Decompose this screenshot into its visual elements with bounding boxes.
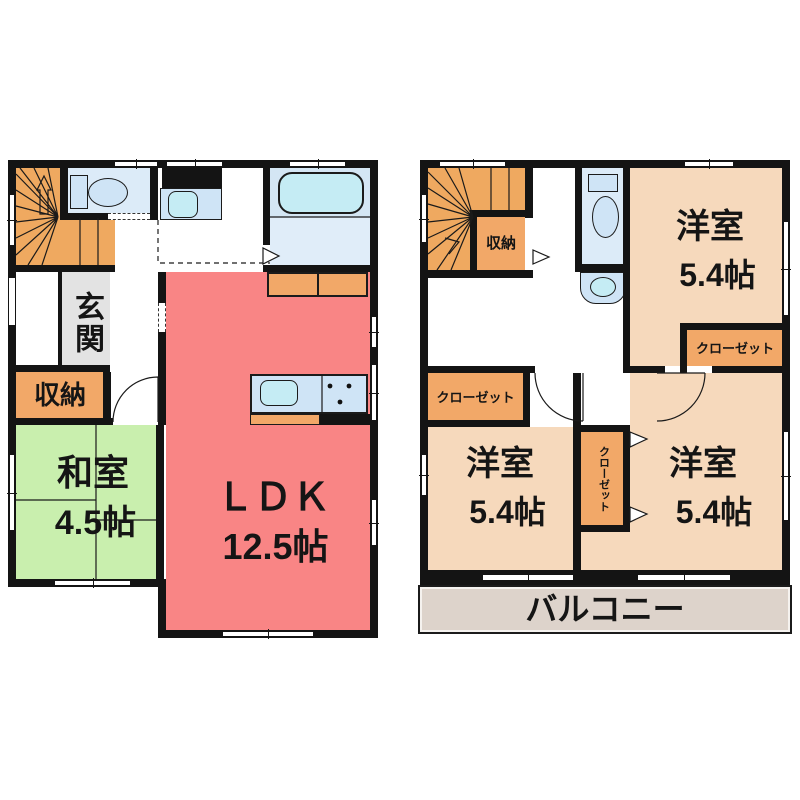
stairs-area [428,210,470,270]
window [223,630,313,638]
wall [573,373,581,570]
wall [523,373,530,427]
wall [420,420,530,427]
window [483,573,573,582]
room-sw-size: 5.4帖 [435,492,580,532]
toilet-door [108,213,150,220]
toilet-tank-icon [588,174,618,192]
wall [150,168,158,220]
window [290,160,345,168]
window [8,455,16,530]
laundry-counter [162,168,222,188]
ldk-sliding-door [158,303,166,332]
door-swing-arrow [533,250,549,264]
wall [623,366,665,373]
wall [263,265,378,272]
window [685,160,733,168]
window [370,365,378,420]
stairs-area [16,168,60,218]
wall [470,210,477,270]
ldk-floor [166,272,370,630]
wall [420,366,535,373]
wall [158,272,166,425]
window [55,579,130,587]
window [420,195,428,242]
wall [60,168,68,218]
wall [575,168,582,272]
room-ne-name: 洋室 [640,205,780,249]
floor1-plan: 玄関 収納 和室 4.5帖 ＬＤＫ 12.5帖 [8,160,378,638]
closet-w-label: クローゼット [428,378,523,416]
wall [680,323,783,330]
floorplan-canvas: 玄関 収納 和室 4.5帖 ＬＤＫ 12.5帖 [0,0,800,800]
closet-mid-label: クローゼット [583,435,623,523]
closet-ne-label: クローゼット [687,332,783,364]
balcony-label: バルコニー [418,588,792,630]
window [638,573,730,582]
window [370,317,378,347]
bathroom-floor [270,217,370,265]
ldk-size: 12.5帖 [193,525,358,569]
genkan-label: 玄関 [62,275,110,370]
toilet-bowl-icon [592,196,619,238]
wall [263,168,270,248]
bathtub-icon [278,172,364,214]
kitchen-cabinet-dark [320,414,370,425]
washbasin-bowl-icon [590,277,616,297]
wall [420,270,533,278]
room-se-size: 5.4帖 [640,492,788,532]
storage-door [525,218,533,270]
window [8,195,16,245]
kitchen-sink-icon [260,380,298,406]
cabinet-cell [269,274,319,295]
window [370,500,378,545]
washitsu-name: 和室 [28,450,158,496]
toilet-bowl-icon [88,178,128,207]
wall [712,366,783,373]
entrance-door [8,278,16,325]
room-sw-name: 洋室 [430,442,570,486]
window [115,160,157,168]
room-se-name: 洋室 [633,442,773,486]
ldk-name: ＬＤＫ [198,475,348,521]
bathroom-door [263,245,270,265]
room-se-floor [581,532,630,570]
ldk-cabinet-row [267,272,368,297]
window [440,160,505,168]
floor2-plan: 収納 洋室 5.4帖 クローゼット クローゼット クローゼット 洋室 5.4帖 … [415,160,795,638]
stairs-area [428,168,525,210]
kitchen-cabinet [250,414,320,425]
stairs-area [16,218,115,265]
wall [575,264,630,272]
wall [8,265,115,272]
open-boundary [158,220,270,263]
wall [581,525,630,532]
window [167,160,222,168]
storage-label: 収納 [477,220,525,266]
wall [680,323,687,373]
washitsu-size: 4.5帖 [28,500,163,546]
cabinet-cell [319,274,367,295]
window [420,455,428,495]
room-ne-size: 5.4帖 [645,255,790,295]
wall [623,425,630,532]
door-arc [113,377,158,422]
wall [420,570,790,585]
wall [470,210,530,217]
wall [8,418,113,425]
vanity-basin-icon [168,191,198,218]
storage-label: 収納 [16,374,104,416]
toilet-tank-icon [70,175,88,209]
